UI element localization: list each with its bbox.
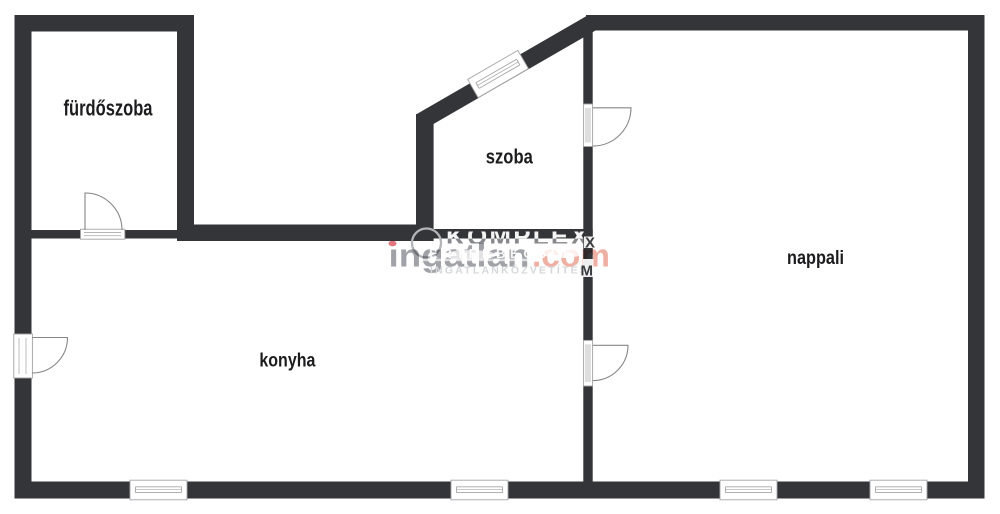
svg-text:INGATLANKÖZVETÍTÉS: INGATLANKÖZVETÍTÉS: [430, 264, 589, 277]
svg-text:X: X: [585, 235, 595, 252]
svg-text:szoba: szoba: [486, 147, 534, 169]
svg-text:konyha: konyha: [259, 350, 315, 372]
svg-text:nappali: nappali: [787, 248, 844, 269]
svg-text:M: M: [581, 263, 594, 280]
svg-text:fürdőszoba: fürdőszoba: [64, 96, 153, 121]
